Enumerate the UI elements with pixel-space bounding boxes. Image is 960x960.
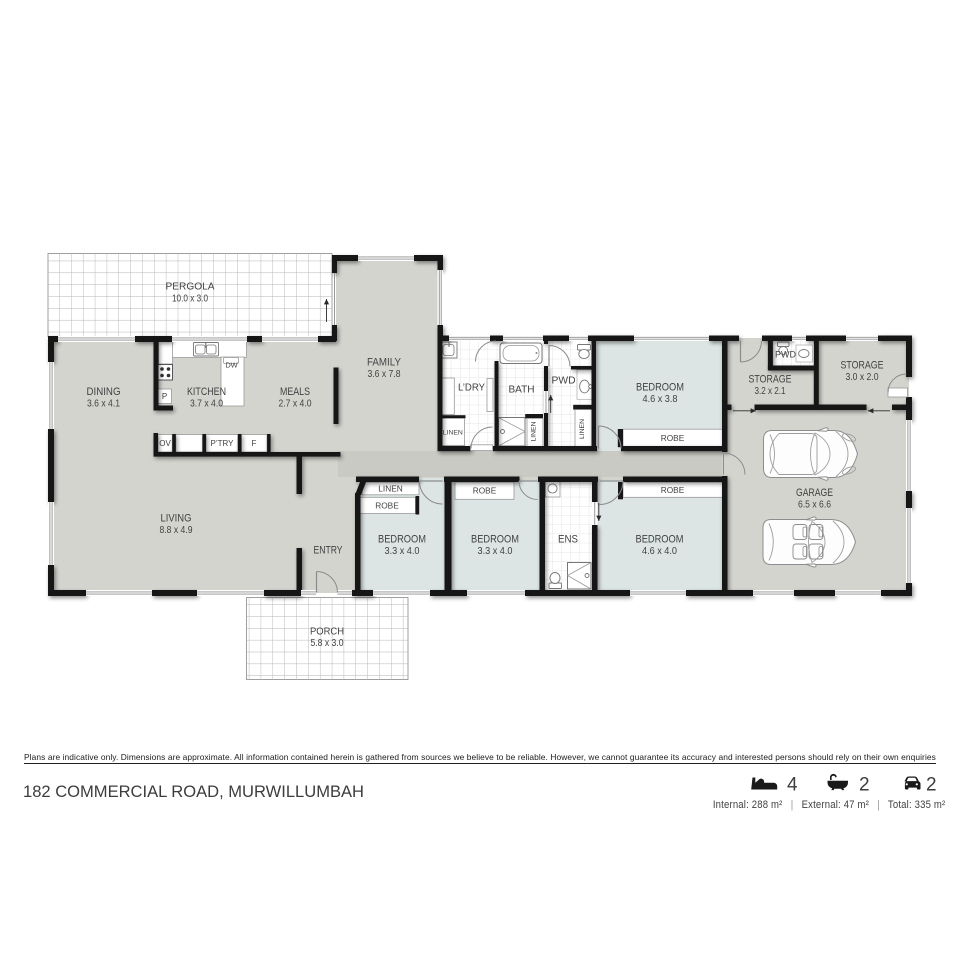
svg-text:10.0 x 3.0: 10.0 x 3.0 [172,294,208,305]
svg-text:KITCHEN: KITCHEN [187,386,226,398]
svg-text:MEALS: MEALS [280,386,310,398]
svg-text:3.3 x 4.0: 3.3 x 4.0 [385,546,420,557]
svg-text:PWD: PWD [552,376,576,387]
svg-text:BEDROOM: BEDROOM [636,534,684,546]
svg-text:3.0 x 2.0: 3.0 x 2.0 [846,372,879,383]
svg-text:P: P [162,392,167,401]
svg-text:LIVING: LIVING [161,513,192,525]
svg-text:GARAGE: GARAGE [796,487,833,499]
svg-text:4: 4 [787,775,798,796]
svg-text:LINEN: LINEN [443,430,463,437]
svg-text:STORAGE: STORAGE [749,374,792,386]
svg-text:5.8 x 3.0: 5.8 x 3.0 [311,638,344,649]
svg-text:P’TRY: P’TRY [211,439,235,448]
svg-text:ROBE: ROBE [661,433,685,443]
svg-text:LINEN: LINEN [531,421,538,441]
svg-text:DW: DW [225,361,237,370]
svg-text:3.6 x 7.8: 3.6 x 7.8 [368,369,401,380]
svg-text:F: F [252,439,257,448]
svg-text:BEDROOM: BEDROOM [378,534,426,546]
svg-text:ENS: ENS [558,534,578,546]
svg-text:DINING: DINING [87,386,121,398]
svg-text:3.2 x 2.1: 3.2 x 2.1 [755,386,786,397]
svg-text:BEDROOM: BEDROOM [471,534,519,546]
svg-text:3.7 x 4.0: 3.7 x 4.0 [190,399,223,410]
svg-text:ROBE: ROBE [473,486,497,496]
svg-text:LINEN: LINEN [579,419,586,439]
svg-text:ENTRY: ENTRY [314,545,343,557]
svg-text:2: 2 [859,775,870,796]
svg-text:ROBE: ROBE [375,500,399,510]
svg-text:8.8 x 4.9: 8.8 x 4.9 [160,525,193,536]
svg-text:PORCH: PORCH [310,627,344,638]
svg-text:4.6 x 4.0: 4.6 x 4.0 [642,546,677,557]
svg-text:2: 2 [926,775,937,796]
svg-text:OV: OV [159,439,171,448]
svg-text:FAMILY: FAMILY [367,357,401,369]
svg-text:2.7 x 4.0: 2.7 x 4.0 [279,399,312,410]
svg-text:BEDROOM: BEDROOM [636,382,684,394]
svg-text:PWD: PWD [775,350,796,360]
svg-text:3.6 x 4.1: 3.6 x 4.1 [87,399,120,410]
svg-text:BATH: BATH [509,385,535,396]
svg-text:6.5 x 6.6: 6.5 x 6.6 [798,500,831,511]
svg-text:PERGOLA: PERGOLA [166,282,215,293]
svg-text:L’DRY: L’DRY [458,383,485,394]
svg-text:ROBE: ROBE [661,485,685,495]
svg-text:STORAGE: STORAGE [841,360,884,372]
svg-text:4.6 x 3.8: 4.6 x 3.8 [643,394,678,405]
svg-text:3.3 x 4.0: 3.3 x 4.0 [478,546,513,557]
svg-text:LINEN: LINEN [378,483,402,493]
